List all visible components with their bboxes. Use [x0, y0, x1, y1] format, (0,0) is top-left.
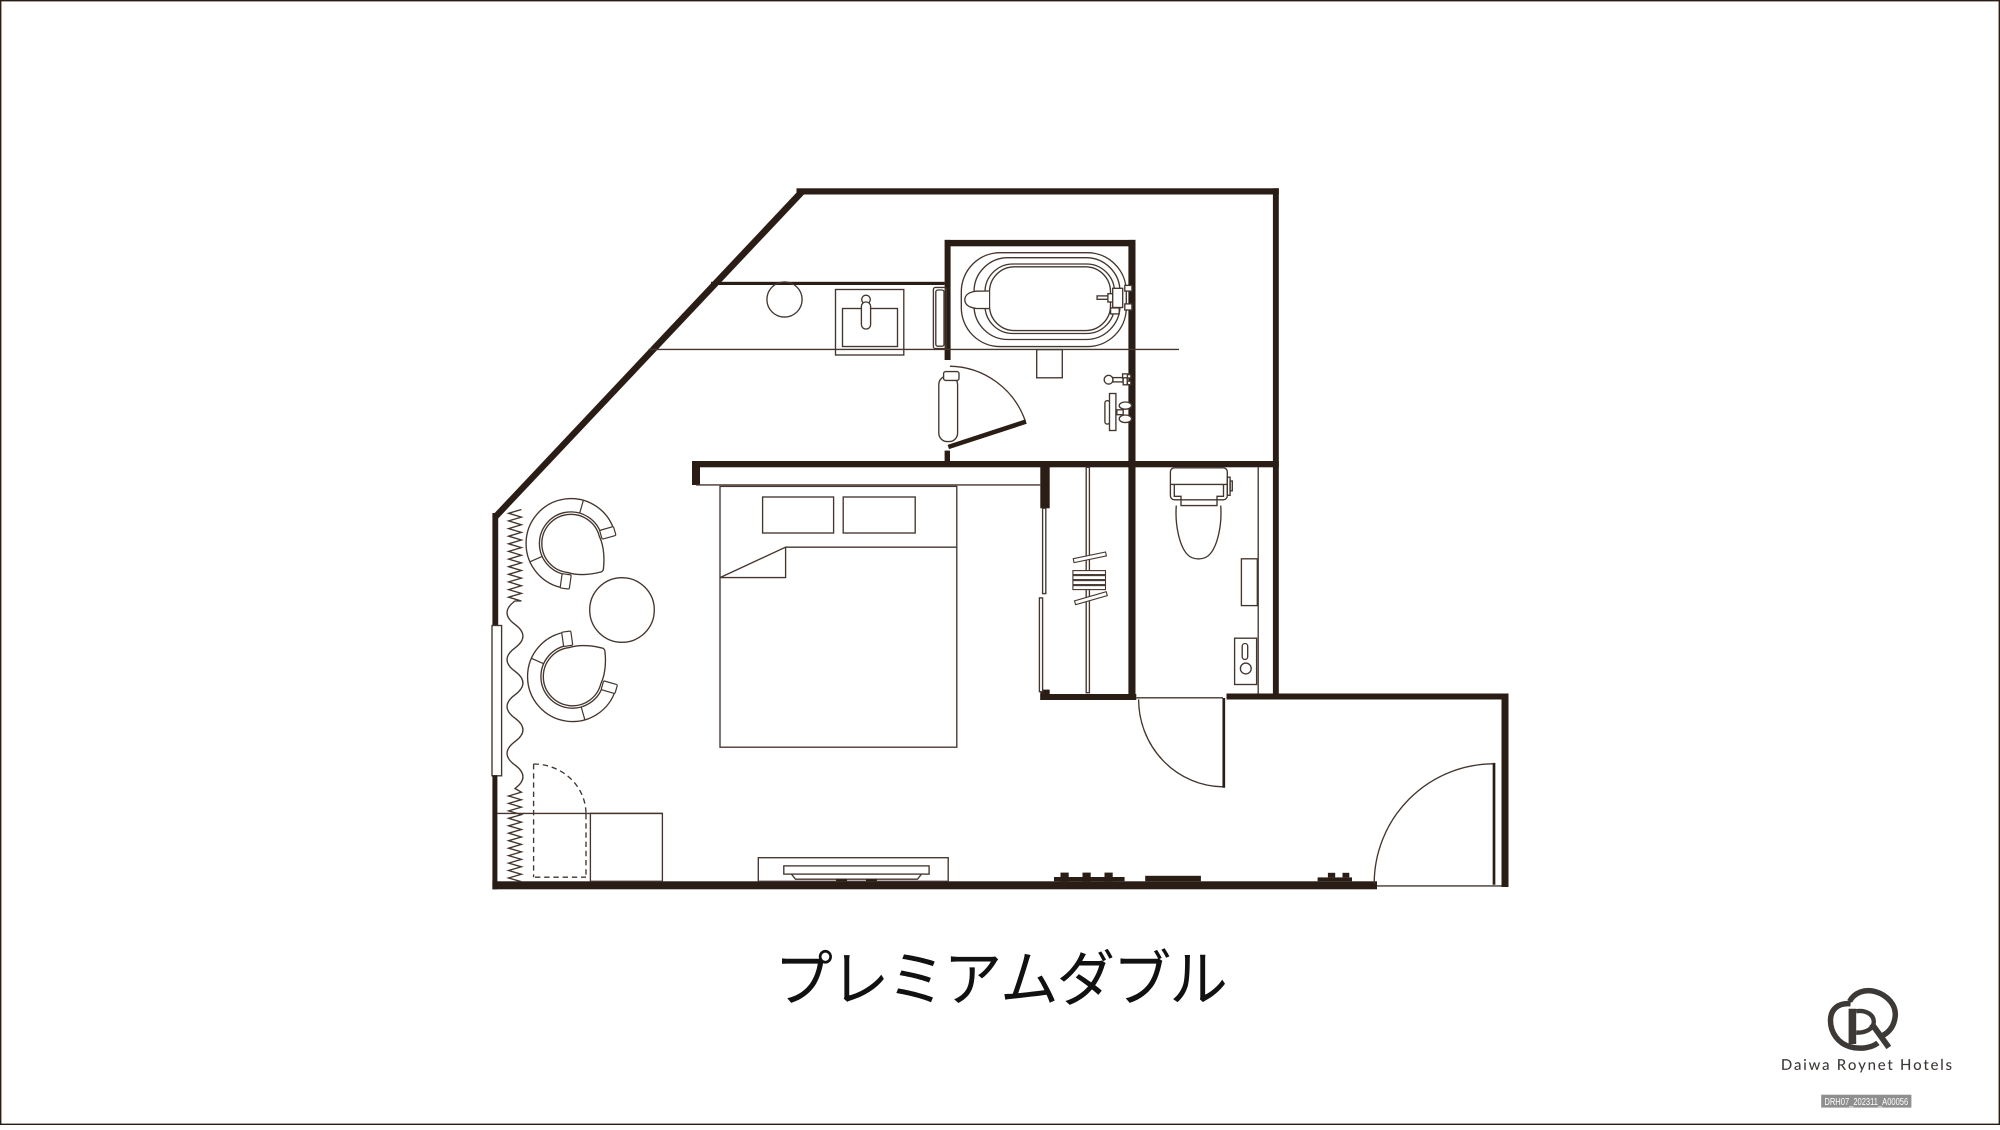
svg-text:DRH07_202311_A00056: DRH07_202311_A00056: [1824, 1097, 1908, 1108]
